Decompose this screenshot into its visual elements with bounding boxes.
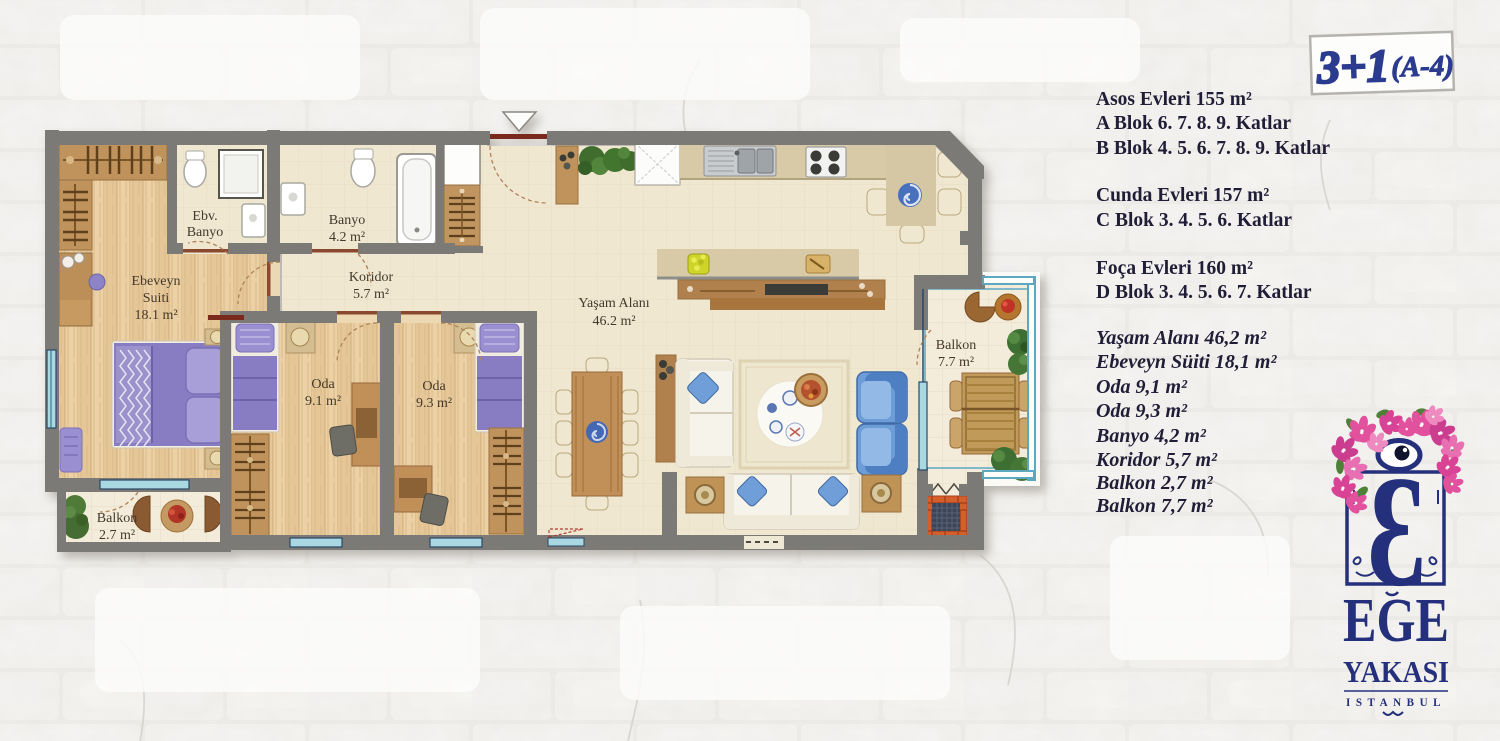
svg-text:9.1 m²: 9.1 m² <box>305 394 341 409</box>
svg-text:Oda 9,3 m²: Oda 9,3 m² <box>1096 400 1188 422</box>
svg-text:Oda: Oda <box>311 377 335 392</box>
svg-text:Ebeveyn Süiti 18,1 m²: Ebeveyn Süiti 18,1 m² <box>1095 351 1277 373</box>
svg-text:EGE: EGE <box>1343 587 1449 655</box>
svg-text:9.3 m²: 9.3 m² <box>416 396 452 411</box>
svg-text:ISTANBUL: ISTANBUL <box>1346 695 1446 709</box>
svg-text:B Blok 4. 5. 6. 7. 8. 9. Katla: B Blok 4. 5. 6. 7. 8. 9. Katlar <box>1096 138 1330 159</box>
svg-text:Ebv.: Ebv. <box>192 209 217 224</box>
svg-text:Banyo 4,2 m²: Banyo 4,2 m² <box>1095 425 1207 447</box>
svg-text:5.7 m²: 5.7 m² <box>353 287 389 302</box>
svg-text:4.2 m²: 4.2 m² <box>329 230 365 245</box>
svg-text:Oda 9,1 m²: Oda 9,1 m² <box>1096 376 1188 398</box>
svg-text:Balkon: Balkon <box>936 338 976 353</box>
svg-text:Balkon 7,7 m²: Balkon 7,7 m² <box>1095 495 1214 517</box>
svg-text:18.1 m²: 18.1 m² <box>134 308 177 323</box>
svg-text:Suiti: Suiti <box>143 291 170 306</box>
svg-text:Yaşam Alanı: Yaşam Alanı <box>578 296 649 311</box>
svg-text:Oda: Oda <box>422 379 446 394</box>
svg-text:Foça Evleri 160 m²: Foça Evleri 160 m² <box>1096 258 1253 279</box>
svg-text:Banyo: Banyo <box>187 225 224 240</box>
svg-text:(A-4): (A-4) <box>1391 50 1455 84</box>
svg-text:Asos Evleri 155 m²: Asos Evleri 155 m² <box>1096 89 1252 110</box>
svg-text:Balkon: Balkon <box>97 511 137 526</box>
svg-text:46.2 m²: 46.2 m² <box>592 314 635 329</box>
svg-text:3+1: 3+1 <box>1315 40 1390 93</box>
svg-text:Koridor 5,7 m²: Koridor 5,7 m² <box>1095 449 1218 471</box>
svg-text:YAKASI: YAKASI <box>1343 654 1449 689</box>
svg-text:Cunda Evleri 157 m²: Cunda Evleri 157 m² <box>1096 185 1269 206</box>
svg-text:Ebeveyn: Ebeveyn <box>132 274 181 289</box>
svg-text:Banyo: Banyo <box>329 213 366 228</box>
svg-text:A Blok 6. 7. 8. 9. Katlar: A Blok 6. 7. 8. 9. Katlar <box>1096 113 1291 134</box>
svg-text:2.7 m²: 2.7 m² <box>99 528 135 543</box>
svg-text:C Blok 3. 4. 5. 6. Katlar: C Blok 3. 4. 5. 6. Katlar <box>1096 210 1292 231</box>
svg-text:D Blok 3. 4. 5. 6. 7. Katlar: D Blok 3. 4. 5. 6. 7. Katlar <box>1096 282 1312 303</box>
svg-text:Balkon 2,7 m²: Balkon 2,7 m² <box>1095 472 1214 494</box>
svg-text:Koridor: Koridor <box>349 270 394 285</box>
svg-text:Yaşam Alanı 46,2 m²: Yaşam Alanı 46,2 m² <box>1096 327 1267 349</box>
svg-text:7.7 m²: 7.7 m² <box>938 355 974 370</box>
